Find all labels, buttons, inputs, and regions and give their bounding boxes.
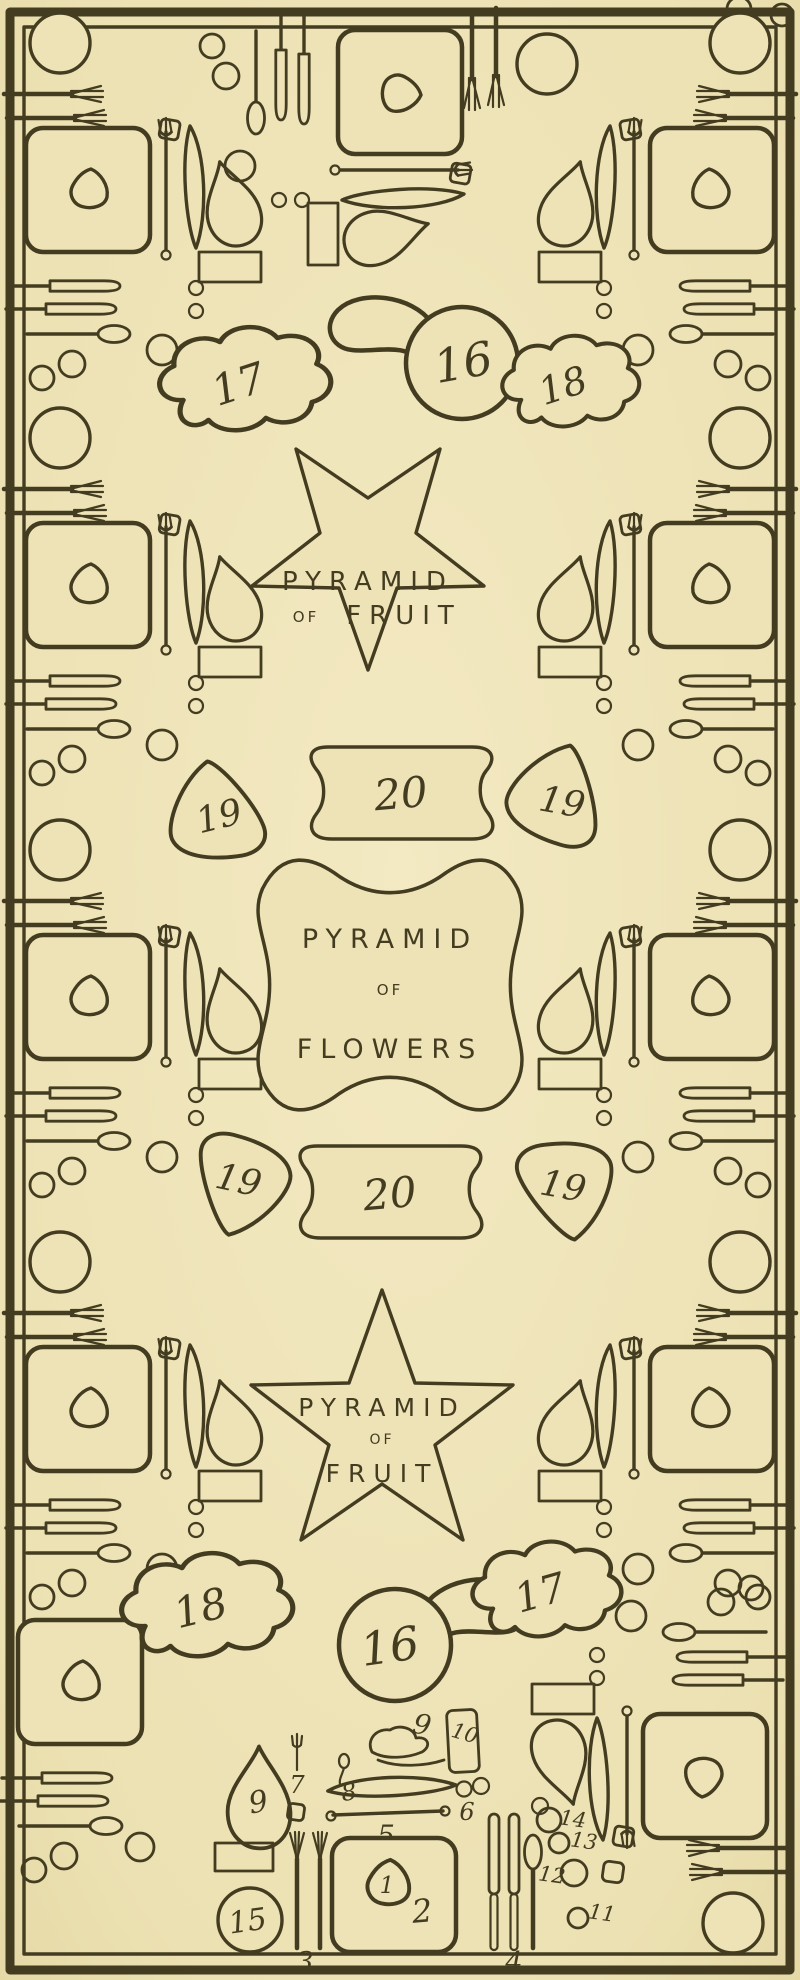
item-13-label: 13 (569, 1827, 599, 1854)
item-6-label: 6 (459, 1798, 474, 1826)
item-3-label: 3 (296, 1947, 313, 1978)
pyramid-fruit-bottom-line1: PYRAMID (298, 1393, 465, 1422)
item-1-label: 1 (380, 1873, 395, 1899)
item-2-label: 2 (409, 1891, 434, 1931)
pyramid-fruit-bottom-line3: FRUIT (326, 1459, 439, 1488)
pyramid-flowers-line3: FLOWERS (297, 1034, 484, 1065)
compote-19-d-label: 19 (537, 1163, 589, 1211)
dish-16-bottom-label: 16 (357, 1615, 422, 1677)
pyramid-fruit-top-line1: PYRAMID (282, 567, 454, 597)
table-plan-canvas: 16 17 18 PYRAMID OF FRUIT 19 20 19 PYRAM… (0, 0, 800, 1980)
table-plan-figure: 16 17 18 PYRAMID OF FRUIT 19 20 19 PYRAM… (0, 0, 800, 1980)
compote-19-b-label: 19 (536, 779, 588, 827)
pyramid-flowers-line2: OF (377, 981, 403, 999)
item-11-label: 11 (587, 1899, 617, 1926)
pyramid-fruit-top-line3: FRUIT (346, 601, 462, 631)
pyramid-fruit-bottom-line2: OF (369, 1432, 394, 1448)
dish-16-top-label: 16 (430, 331, 497, 394)
oblong-20-b-label: 20 (360, 1167, 419, 1221)
item-7-label: 7 (289, 1771, 305, 1799)
item-12-label: 12 (537, 1861, 567, 1888)
pyramid-flowers-line1: PYRAMID (302, 924, 478, 955)
oblong-20-a-label: 20 (371, 767, 430, 821)
pyramid-fruit-top-line2: OF (293, 608, 319, 626)
item-15-label: 15 (226, 1902, 269, 1942)
item-4-label: 4 (504, 1947, 522, 1978)
